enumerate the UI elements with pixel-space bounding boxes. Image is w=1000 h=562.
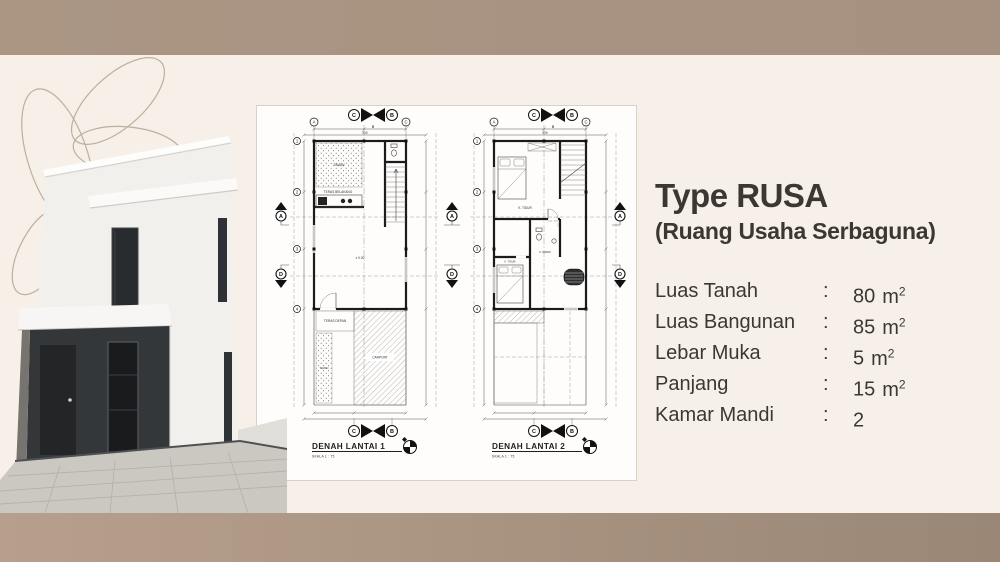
svg-text:B: B [372,125,375,129]
svg-text:CARPORT: CARPORT [372,356,388,360]
bedroom-1: K. TIDUR [498,143,556,210]
section-arrows-right: A D [609,200,631,292]
spec-colon: : [823,372,853,403]
poster-canvas: C B B A C 500 1 2 3 4 [0,0,1000,562]
svg-text:A: A [313,120,316,125]
lower-roof-void [494,309,586,405]
dimension-lines-bottom [303,412,428,421]
plan2-title-block: DENAH LANTAI 2 SKALA 1 : 75 [492,437,597,459]
spec-row-luas-tanah: Luas Tanah : 80m2 [655,279,990,310]
svg-text:SKALA 1 : 75: SKALA 1 : 75 [312,455,335,459]
grid-axis-labels: A C [310,118,410,141]
section-cut-marker-bottom: C B [349,418,398,438]
svg-text:D: D [618,272,622,278]
svg-text:500: 500 [362,131,368,135]
glass-door [108,342,138,454]
spec-label: Kamar Mandi [655,403,823,434]
spec-row-lebar-muka: Lebar Muka : 5m2 [655,341,990,372]
svg-text:500: 500 [542,131,548,135]
outdoor-unit [564,269,584,285]
plan1-title-block: DENAH LANTAI 1 SKALA 1 : 75 [312,437,417,459]
stairs [560,145,586,195]
svg-text:A: A [618,214,622,220]
svg-text:± 0.00: ± 0.00 [356,256,365,260]
svg-text:K. TIDUR: K. TIDUR [518,206,532,210]
section-cut-marker-top: C B B [529,108,578,129]
spec-value: 80m2 [853,279,990,310]
svg-text:SKALA 1 : 75: SKALA 1 : 75 [492,455,515,459]
spec-row-panjang: Panjang : 15m2 [655,372,990,403]
spec-row-luas-bangunan: Luas Bangunan : 85m2 [655,310,990,341]
lower-slit-window [224,352,232,452]
upper-window [112,228,138,310]
spec-value: 5m2 [853,341,990,372]
svg-text:B: B [552,125,555,129]
spec-value: 85m2 [853,310,990,341]
north-compass-icon [402,437,417,454]
spec-row-kamar-mandi: Kamar Mandi : 2 [655,403,990,434]
spec-colon: : [823,341,853,372]
grid-axis-labels: A C [490,118,590,141]
svg-text:B: B [570,429,574,435]
bottom-band [0,513,1000,562]
svg-text:TERAS BELAKANG: TERAS BELAKANG [324,190,353,194]
dimension-lines-bottom [483,412,608,421]
svg-text:C: C [532,113,536,119]
svg-text:B: B [390,429,394,435]
spec-value: 2 [853,403,990,434]
bedroom-2: K. TIDUR [497,260,523,304]
floorplan-denah-lantai-1: C B B A C 500 1 2 3 4 [290,107,440,475]
type-subtitle: (Ruang Usaha Serbaguna) [655,216,990,246]
section-cut-marker-top: C B B [349,108,398,129]
top-band [0,0,1000,55]
svg-text:TAMAN: TAMAN [320,366,329,370]
svg-text:A: A [493,120,496,125]
svg-text:B: B [570,113,574,119]
stairs [385,167,406,222]
type-title: Type RUSA [655,176,990,216]
spec-label: Luas Bangunan [655,310,823,341]
svg-text:C: C [532,429,536,435]
svg-text:TAMAN: TAMAN [334,163,346,167]
kitchen-counter [316,195,362,207]
north-compass-icon [582,437,597,454]
svg-text:C: C [352,429,356,435]
svg-text:K. MANDI: K. MANDI [539,250,551,254]
svg-text:C: C [352,113,356,119]
spec-table: Luas Tanah : 80m2 Luas Bangunan : 85m2 L… [655,279,990,434]
spec-label: Panjang [655,372,823,403]
svg-text:A: A [450,214,454,220]
house-photo [0,100,290,513]
svg-text:K. TIDUR: K. TIDUR [504,260,515,264]
svg-text:C: C [404,120,407,125]
svg-text:B: B [390,113,394,119]
svg-text:TERAS DEPAN: TERAS DEPAN [324,319,347,323]
svg-text:C: C [584,120,587,125]
svg-text:D: D [450,272,454,278]
spec-colon: : [823,310,853,341]
upper-slit-window [218,218,227,302]
bathroom: K. MANDI [536,221,558,254]
section-arrows-middle: A D [441,200,463,292]
info-panel: Type RUSA (Ruang Usaha Serbaguna) Luas T… [655,176,990,434]
spec-colon: : [823,279,853,310]
spec-label: Lebar Muka [655,341,823,372]
spec-colon: : [823,403,853,434]
spec-label: Luas Tanah [655,279,823,310]
section-cut-marker-bottom: C B [529,418,578,438]
toilet-fixture [391,144,397,156]
svg-text:DENAH LANTAI 2: DENAH LANTAI 2 [492,442,565,451]
spec-value: 15m2 [853,372,990,403]
floorplan-denah-lantai-2: C B B A C 500 1 2 3 4 [470,107,620,475]
svg-text:DENAH LANTAI 1: DENAH LANTAI 1 [312,442,385,451]
